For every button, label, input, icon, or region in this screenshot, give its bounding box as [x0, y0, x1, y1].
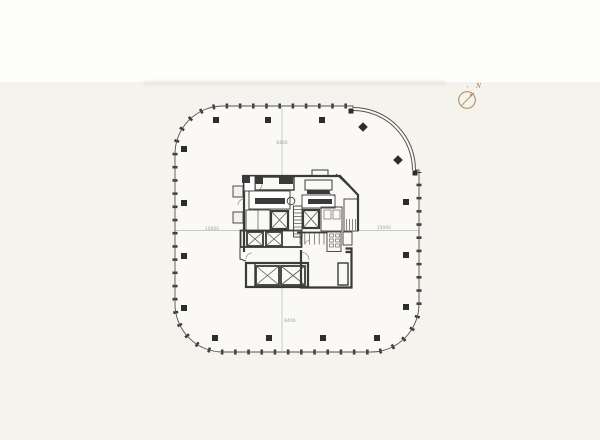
- column: [181, 200, 187, 206]
- compass-dot: [467, 86, 469, 88]
- column: [320, 335, 326, 341]
- column: [403, 304, 409, 310]
- page-background: 8400 15000 15000 8400 N: [0, 0, 600, 440]
- column: [403, 199, 409, 205]
- column: [266, 335, 272, 341]
- column: [212, 335, 218, 341]
- duct-shaft: [233, 212, 243, 223]
- column: [413, 171, 418, 176]
- compass-north-label: N: [476, 82, 481, 90]
- mech-dark-bar: [307, 190, 330, 194]
- elevator-door-bar: [255, 198, 285, 204]
- dimension-label-bottom: 8400: [279, 318, 301, 323]
- column: [319, 117, 325, 123]
- column: [349, 109, 354, 114]
- north-compass-icon: [450, 76, 494, 112]
- column: [181, 146, 187, 152]
- mech-dark-fill: [279, 177, 293, 184]
- mech-dark-fill: [255, 177, 263, 184]
- dimension-label-top: 8400: [271, 140, 293, 145]
- duct-shaft: [233, 186, 243, 197]
- dimension-label-left: 15000: [201, 226, 223, 231]
- column: [403, 252, 409, 258]
- column: [181, 305, 187, 311]
- column: [265, 117, 271, 123]
- corner-wall-block: [242, 175, 250, 183]
- dimension-label-right: 15000: [373, 225, 395, 230]
- floor-plan-drawing: [0, 0, 600, 440]
- column: [181, 253, 187, 259]
- column: [374, 335, 380, 341]
- column: [213, 117, 219, 123]
- elevator-door-bar: [308, 199, 332, 204]
